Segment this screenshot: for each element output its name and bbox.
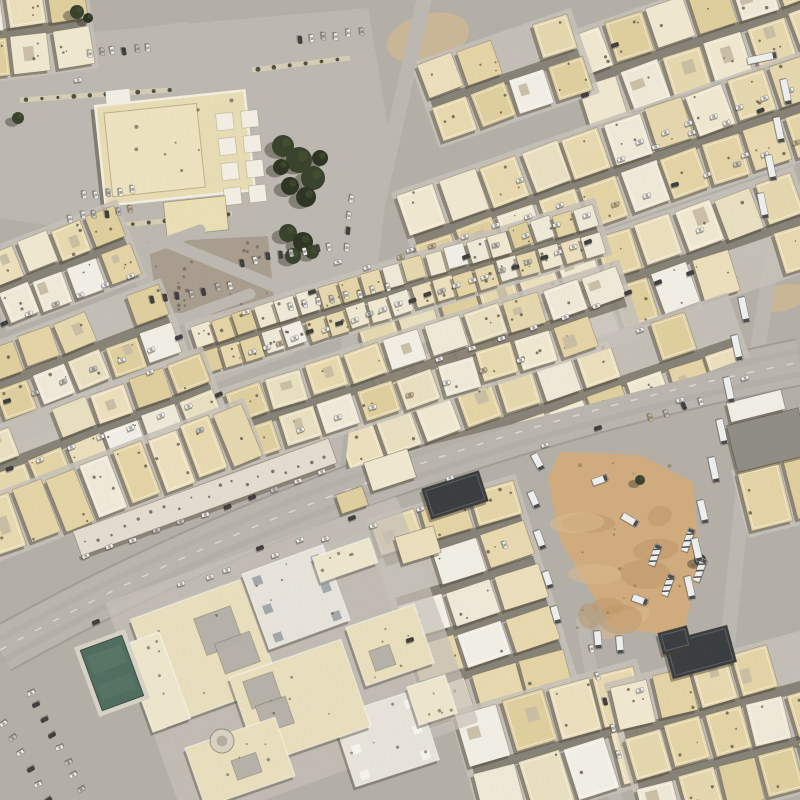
satellite-map-image <box>0 0 800 800</box>
grain-overlay <box>0 0 800 800</box>
satellite-view <box>0 0 800 800</box>
